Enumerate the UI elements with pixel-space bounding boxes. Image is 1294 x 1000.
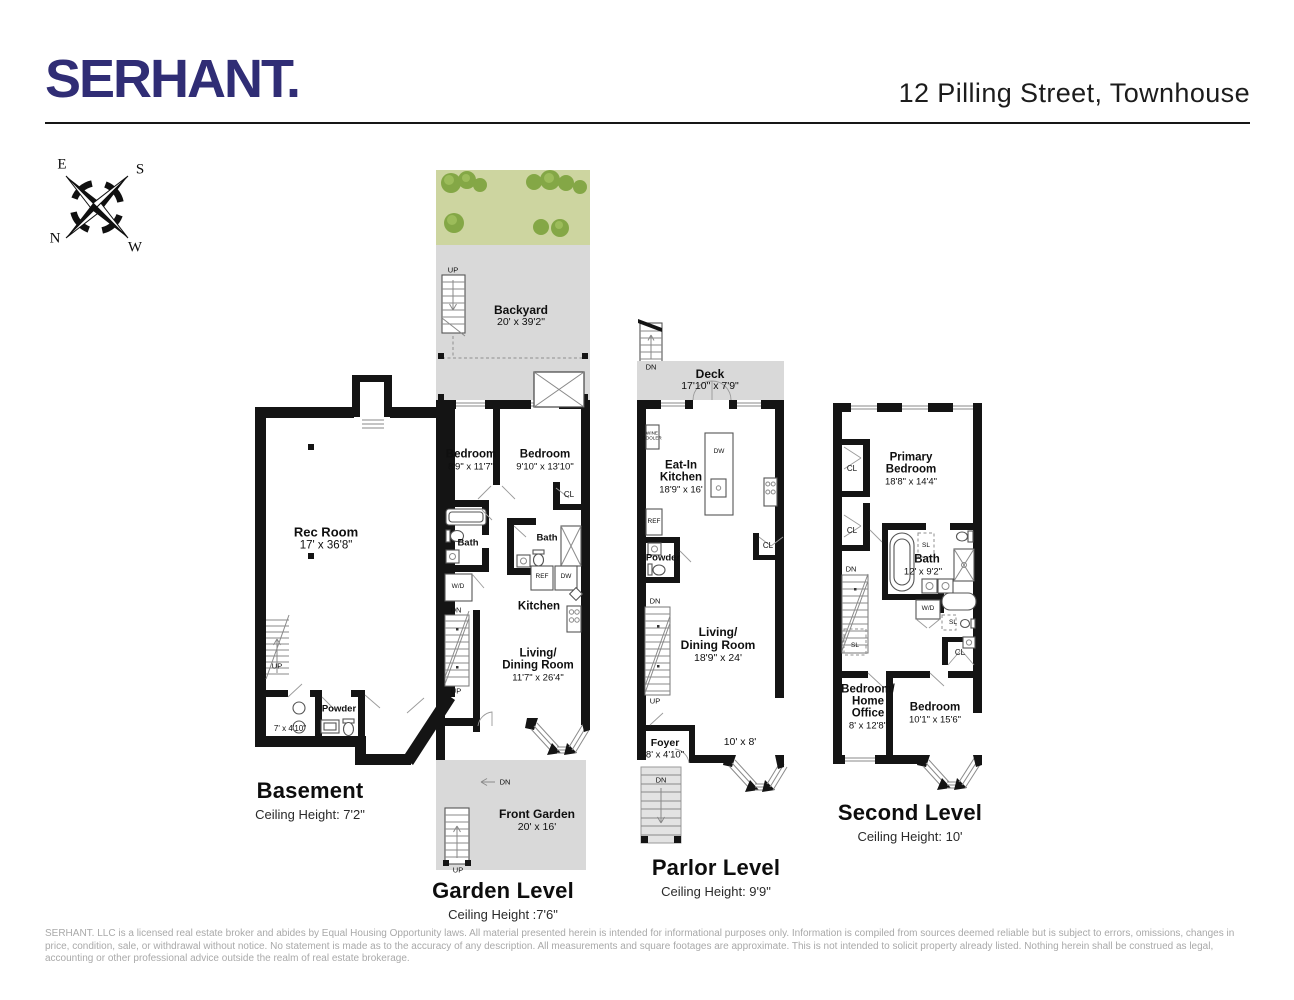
second-title-block: Second Level Ceiling Height: 10' xyxy=(810,800,1010,844)
second-bedroom-office-label-1: Bedroom/ xyxy=(841,684,895,696)
garden-closet-label: CL xyxy=(564,491,574,499)
second-bedroom-label: Bedroom xyxy=(910,702,960,714)
parlor-plan-graphic xyxy=(633,315,788,845)
garden-stairs xyxy=(445,611,469,686)
second-bath-dims: 12' x 9'2" xyxy=(904,567,942,577)
page-title: 12 Pilling Street, Townhouse xyxy=(899,78,1250,109)
garden-backyard-dims: 20' x 39'2" xyxy=(497,317,545,328)
second-closet-1-label: CL xyxy=(847,465,857,473)
parlor-wine-cooler-label-2: COOLER xyxy=(642,437,661,442)
parlor-foyer-label: Foyer xyxy=(651,738,680,749)
compass-south: S xyxy=(136,162,144,179)
basement-title: Basement xyxy=(210,778,410,804)
garden-title: Garden Level xyxy=(403,878,603,904)
second-bedroom-dims: 10'1" x 15'6" xyxy=(909,715,961,725)
parlor-stoop-dn-label: DN xyxy=(656,776,667,784)
header-divider xyxy=(45,122,1250,124)
compass-rose: E S N W xyxy=(50,148,150,263)
parlor-stairs xyxy=(645,607,670,695)
parlor-living-label-1: Living/ xyxy=(699,626,738,638)
floorplan-page: SERHANT. 12 Pilling Street, Townhouse E … xyxy=(0,0,1294,1000)
garden-bath-left-label: Bath xyxy=(457,538,478,548)
compass-west: W xyxy=(128,240,142,257)
garden-title-block: Garden Level Ceiling Height :7'6" xyxy=(403,878,603,922)
floorplan-garden-level: Backyard 20' x 39'2" UP Bedroom 8'9" x 1… xyxy=(433,170,590,870)
garden-living-label-1: Living/ xyxy=(519,648,556,660)
parlor-stairs-dn-label: DN xyxy=(650,597,661,605)
garden-grass xyxy=(436,170,590,245)
parlor-deck-dn-label: DN xyxy=(646,363,657,371)
garden-stoop-up-label: UP xyxy=(453,866,463,874)
garden-bedroom-right-label: Bedroom xyxy=(520,449,570,461)
floorplan-basement: Rec Room 17' x 36'8" UP 7' x 4'10" Powde… xyxy=(255,375,455,765)
second-primary-dims: 18'8" x 14'4" xyxy=(885,477,937,487)
floorplan-parlor-level: DN Deck 17'10" x 7'9" WINE COOLER Eat-In… xyxy=(633,315,788,845)
basement-ceiling-height: Ceiling Height: 7'2" xyxy=(210,807,410,822)
second-bath-label: Bath xyxy=(914,554,940,566)
basement-powder-fixtures xyxy=(321,719,354,736)
floorplan-second-level: Primary Bedroom 18'8" x 14'4" CL CL SL B… xyxy=(830,403,985,795)
garden-front-garden-dims: 20' x 16' xyxy=(518,822,556,833)
garden-ceiling-height: Ceiling Height :7'6" xyxy=(403,907,603,922)
basement-stairs-up-label: UP xyxy=(272,662,282,670)
second-title: Second Level xyxy=(810,800,1010,826)
basement-rec-room-label: Rec Room xyxy=(294,526,358,539)
parlor-dw-label: DW xyxy=(714,449,725,456)
second-primary-label-2: Bedroom xyxy=(886,464,936,476)
second-skylight-bath-label: SL xyxy=(922,543,930,550)
second-skylight-2-label: SL xyxy=(949,620,957,627)
garden-living-dims: 11'7" x 26'4" xyxy=(512,673,563,683)
parlor-stairs-up-label: UP xyxy=(650,697,660,705)
parlor-deck-dims: 17'10" x 7'9" xyxy=(681,381,739,392)
garden-ref-label: REF xyxy=(536,574,549,581)
garden-stairs-up-label: UP xyxy=(451,687,461,695)
second-closet-2-label: CL xyxy=(847,527,857,535)
second-ceiling-height: Ceiling Height: 10' xyxy=(810,829,1010,844)
garden-bedroom-left-dims: 8'9" x 11'7" xyxy=(448,462,494,472)
second-primary-label-1: Primary xyxy=(890,452,933,464)
garden-bedroom-left-label: Bedroom xyxy=(446,449,496,461)
parlor-living-dims: 18'9" x 24' xyxy=(694,653,742,664)
parlor-ref-label: REF xyxy=(648,519,661,526)
garden-entry-dn-label: DN xyxy=(500,778,511,786)
second-skylight-stairs-label: SL xyxy=(851,643,859,650)
parlor-powder-label: Powder xyxy=(646,553,680,563)
basement-laundry-dims: 7' x 4'10" xyxy=(274,725,306,733)
garden-kitchen-label: Kitchen xyxy=(518,601,560,613)
parlor-deck-label: Deck xyxy=(696,368,725,380)
garden-living-label-2: Dining Room xyxy=(502,660,574,672)
parlor-ceiling-height: Ceiling Height: 9'9" xyxy=(616,884,816,899)
garden-front-garden-label: Front Garden xyxy=(499,808,575,820)
parlor-deck-stairs xyxy=(638,319,662,363)
garden-wd-label: W/D xyxy=(452,584,465,591)
second-bay-window xyxy=(917,755,982,790)
garden-backyard-up-label: UP xyxy=(448,266,458,274)
garden-plan-graphic xyxy=(433,170,590,870)
garden-backyard-label: Backyard xyxy=(494,304,548,316)
parlor-eat-in-kitchen-dims: 18'9" x 16' xyxy=(659,485,702,495)
basement-entry-steps xyxy=(362,420,384,428)
garden-bath-left-fixtures xyxy=(446,509,486,563)
serhant-logo: SERHANT. xyxy=(45,48,299,110)
parlor-foyer-dims: 8' x 4'10" xyxy=(646,750,684,760)
second-stairs-dn-label: DN xyxy=(846,565,857,573)
parlor-eat-in-kitchen-label-1: Eat-In xyxy=(665,460,697,472)
parlor-eat-in-kitchen-label-2: Kitchen xyxy=(660,472,702,484)
second-closet-3-label: CL xyxy=(955,649,965,657)
garden-bulkhead xyxy=(534,372,584,407)
second-bedroom-office-label-3: Office xyxy=(852,708,885,720)
compass-east: E xyxy=(57,157,66,174)
basement-rec-room-dims: 17' x 36'8" xyxy=(300,540,353,552)
parlor-bay-dims: 10' x 8' xyxy=(724,737,757,748)
compass-north: N xyxy=(50,231,61,248)
parlor-title-block: Parlor Level Ceiling Height: 9'9" xyxy=(616,855,816,899)
basement-title-block: Basement Ceiling Height: 7'2" xyxy=(210,778,410,822)
basement-powder-label: Powder xyxy=(322,704,356,714)
parlor-bay-window xyxy=(723,755,787,792)
second-bedroom-office-dims: 8' x 12'8" xyxy=(849,721,887,731)
second-bedroom-office-label-2: Home xyxy=(852,696,884,708)
garden-bedroom-right-dims: 9'10" x 13'10" xyxy=(516,462,573,472)
footer-disclaimer: SERHANT. LLC is a licensed real estate b… xyxy=(45,928,1250,966)
parlor-living-label-2: Dining Room xyxy=(681,639,756,651)
parlor-closet-label: CL xyxy=(763,542,773,550)
parlor-title: Parlor Level xyxy=(616,855,816,881)
second-wd-label: W/D xyxy=(922,606,935,613)
garden-bath-right-label: Bath xyxy=(536,533,557,543)
garden-dw-label: DW xyxy=(561,574,572,581)
garden-stairs-dn-label: DN xyxy=(451,606,462,614)
garden-bay-window xyxy=(525,718,590,755)
